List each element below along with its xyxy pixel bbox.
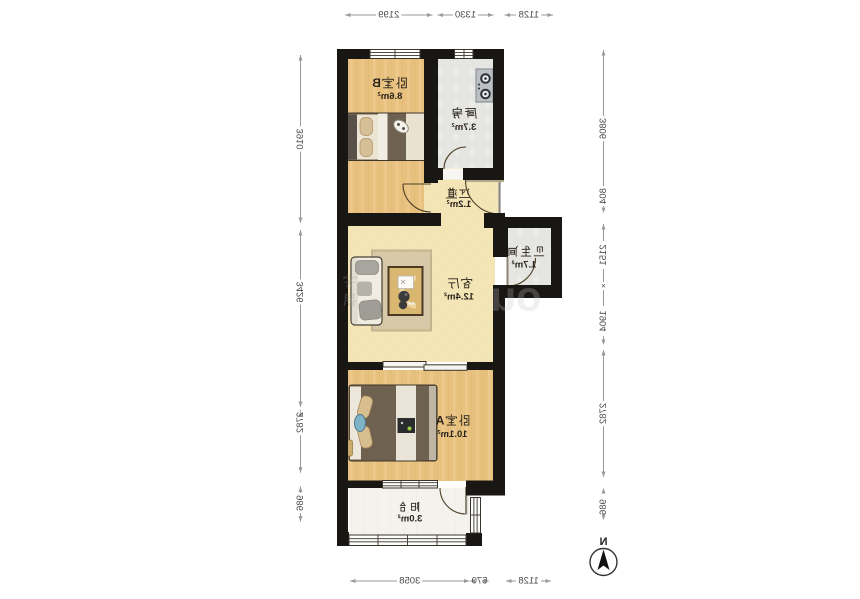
svg-text:3910: 3910 [295,128,306,149]
svg-text:×: × [601,282,606,291]
svg-text:986: 986 [598,499,609,515]
svg-text:1.7m²: 1.7m² [512,260,537,271]
svg-text:8.6m²: 8.6m² [378,91,403,102]
svg-text:2782: 2782 [295,412,306,433]
svg-text:1128: 1128 [518,576,538,587]
svg-text:3.7m²: 3.7m² [452,122,477,133]
svg-text:10.1m²: 10.1m² [437,429,467,440]
svg-text:986: 986 [295,495,306,511]
svg-text:3806: 3806 [598,118,609,139]
svg-text:2199: 2199 [378,10,399,21]
svg-text:3058: 3058 [399,576,420,587]
svg-text:804: 804 [598,188,609,204]
svg-text:3.0m²: 3.0m² [398,513,423,524]
svg-text:B: B [372,76,381,90]
svg-text:1128: 1128 [519,10,539,21]
svg-text:570: 570 [472,576,488,587]
svg-text:N: N [599,536,607,548]
svg-text:1904: 1904 [598,310,609,331]
svg-text:3426: 3426 [295,281,306,302]
svg-text:12.4m²: 12.4m² [444,292,474,303]
svg-text:2782: 2782 [598,403,609,424]
svg-text:2151: 2151 [598,244,609,265]
svg-text:A: A [435,414,444,428]
svg-text:ou: ou [490,273,541,320]
svg-text:1.2m²: 1.2m² [447,199,472,210]
svg-text:1330: 1330 [455,10,476,21]
